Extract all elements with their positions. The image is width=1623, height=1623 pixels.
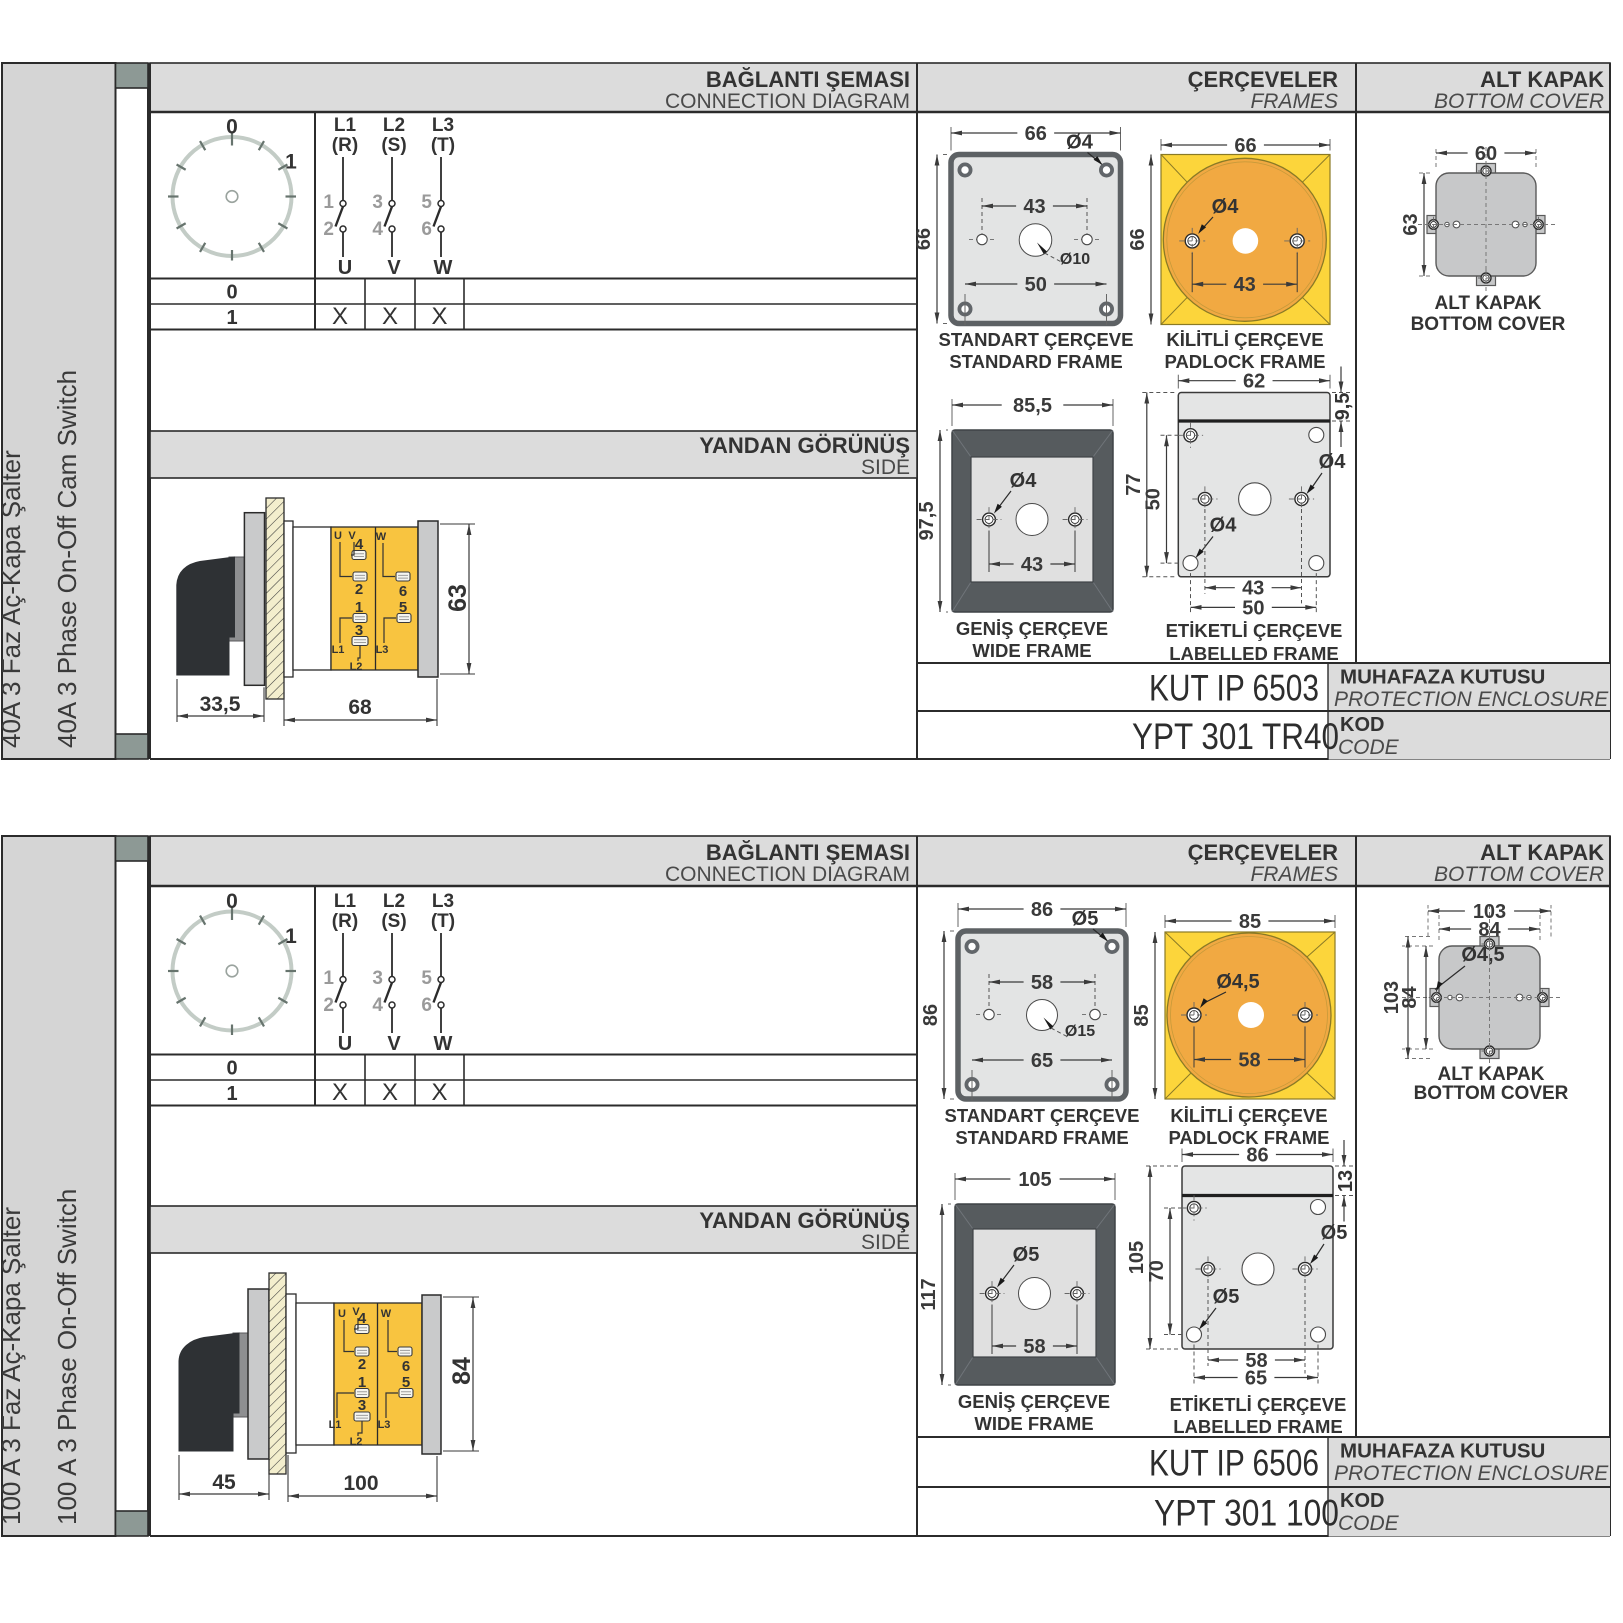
svg-text:Ø5: Ø5 [1013,1244,1040,1266]
svg-text:Ø5: Ø5 [1321,1222,1348,1244]
svg-text:84: 84 [448,1357,476,1385]
svg-text:5: 5 [402,1374,410,1391]
svg-text:4: 4 [355,536,364,553]
svg-text:33,5: 33,5 [200,693,241,716]
svg-text:WIDE FRAME: WIDE FRAME [972,640,1091,661]
svg-text:5: 5 [421,192,432,213]
svg-text:3: 3 [372,192,383,213]
svg-text:CONNECTION DIAGRAM: CONNECTION DIAGRAM [665,863,910,886]
svg-text:1: 1 [226,307,237,329]
svg-text:L2: L2 [383,891,405,912]
svg-text:LABELLED FRAME: LABELLED FRAME [1173,1416,1343,1437]
svg-text:66: 66 [913,228,935,250]
svg-text:5: 5 [399,599,407,616]
svg-text:(R): (R) [332,135,358,156]
svg-text:BOTTOM COVER: BOTTOM COVER [1411,314,1566,335]
svg-text:ALT KAPAK: ALT KAPAK [1435,293,1542,314]
svg-text:ETİKETLİ ÇERÇEVE: ETİKETLİ ÇERÇEVE [1170,1394,1347,1415]
svg-text:65: 65 [1245,1368,1267,1390]
svg-text:CODE: CODE [1338,1512,1400,1535]
svg-text:4: 4 [358,1310,367,1327]
svg-text:STANDARD FRAME: STANDARD FRAME [955,1127,1128,1148]
svg-text:Ø10: Ø10 [1060,251,1090,268]
svg-text:L1: L1 [334,891,357,912]
svg-text:63: 63 [1400,213,1422,235]
svg-text:X: X [382,303,398,330]
svg-text:6: 6 [402,1358,410,1375]
svg-text:L2: L2 [350,661,363,673]
svg-text:85,5: 85,5 [1013,395,1052,417]
svg-text:Ø15: Ø15 [1065,1023,1095,1040]
svg-text:1: 1 [226,1083,237,1105]
svg-text:1: 1 [358,1374,366,1391]
svg-text:FRAMES: FRAMES [1250,90,1338,113]
svg-text:1: 1 [323,192,334,213]
svg-text:W: W [381,1308,392,1320]
svg-text:0: 0 [226,890,238,913]
svg-text:STANDART ÇERÇEVE: STANDART ÇERÇEVE [939,329,1134,350]
svg-text:3: 3 [358,1397,366,1414]
svg-text:68: 68 [348,696,372,719]
svg-text:KOD: KOD [1340,1490,1384,1512]
svg-text:PROTECTION ENCLOSURE: PROTECTION ENCLOSURE [1334,688,1609,711]
svg-text:L1: L1 [334,115,357,136]
svg-text:W: W [434,257,453,279]
svg-text:CONNECTION DIAGRAM: CONNECTION DIAGRAM [665,90,910,113]
svg-text:6: 6 [421,995,432,1016]
svg-text:86: 86 [1031,899,1053,921]
svg-text:U: U [334,530,342,542]
svg-text:3: 3 [372,968,383,989]
svg-text:86: 86 [1246,1145,1268,1167]
svg-text:BOTTOM COVER: BOTTOM COVER [1434,90,1604,113]
svg-text:BOTTOM COVER: BOTTOM COVER [1414,1083,1569,1104]
svg-text:62: 62 [1243,371,1265,393]
svg-text:Ø4: Ø4 [1212,196,1240,218]
svg-text:63: 63 [444,584,472,612]
svg-text:0: 0 [226,116,238,139]
svg-text:(S): (S) [381,911,406,932]
svg-text:WIDE FRAME: WIDE FRAME [974,1413,1093,1434]
svg-text:(T): (T) [431,911,455,932]
svg-text:45: 45 [212,1471,236,1494]
svg-text:0: 0 [226,282,237,304]
svg-text:Ø4: Ø4 [1010,470,1038,492]
svg-text:L3: L3 [432,891,454,912]
svg-text:KİLİTLİ ÇERÇEVE: KİLİTLİ ÇERÇEVE [1166,329,1323,350]
svg-text:1: 1 [323,968,334,989]
svg-text:58: 58 [1023,1336,1045,1358]
svg-text:BOTTOM COVER: BOTTOM COVER [1434,863,1604,886]
svg-text:1: 1 [285,151,297,174]
svg-text:(S): (S) [381,135,406,156]
svg-text:0: 0 [226,1058,237,1080]
svg-text:2: 2 [355,581,363,598]
svg-text:L3: L3 [378,1419,391,1431]
svg-text:YPT 301 TR40: YPT 301 TR40 [1132,716,1339,757]
svg-text:(T): (T) [431,135,455,156]
svg-text:6: 6 [399,583,407,600]
svg-text:43: 43 [1021,554,1043,576]
svg-text:Ø4: Ø4 [1210,515,1238,537]
svg-text:ALT KAPAK: ALT KAPAK [1438,1064,1545,1085]
svg-text:85: 85 [1239,911,1261,933]
svg-text:58: 58 [1031,972,1053,994]
svg-text:YANDAN GÖRÜNÜŞ: YANDAN GÖRÜNÜŞ [699,1208,910,1233]
svg-text:CODE: CODE [1338,736,1400,759]
svg-text:100: 100 [343,1472,378,1495]
svg-text:4: 4 [372,995,383,1016]
svg-text:85: 85 [1131,1004,1153,1026]
svg-text:77: 77 [1123,474,1145,496]
svg-text:X: X [431,1079,447,1106]
svg-text:66: 66 [1127,228,1149,250]
svg-text:L2: L2 [350,1436,363,1448]
svg-text:43: 43 [1023,196,1045,218]
svg-text:MUHAFAZA KUTUSU: MUHAFAZA KUTUSU [1340,666,1545,689]
svg-text:SIDE: SIDE [861,1231,910,1254]
svg-text:L1: L1 [332,644,345,656]
svg-text:ÇERÇEVELER: ÇERÇEVELER [1188,67,1338,92]
svg-text:84: 84 [1399,986,1421,1009]
svg-text:W: W [434,1033,453,1055]
svg-text:X: X [431,303,447,330]
svg-text:FRAMES: FRAMES [1250,863,1338,886]
svg-text:X: X [382,1079,398,1106]
svg-text:GENİŞ ÇERÇEVE: GENİŞ ÇERÇEVE [956,618,1108,639]
svg-text:PADLOCK FRAME: PADLOCK FRAME [1164,351,1325,372]
svg-text:L3: L3 [432,115,454,136]
svg-text:3: 3 [355,622,363,639]
svg-text:KİLİTLİ ÇERÇEVE: KİLİTLİ ÇERÇEVE [1170,1105,1327,1126]
svg-text:50: 50 [1025,274,1047,296]
svg-text:L3: L3 [376,644,389,656]
svg-text:L1: L1 [329,1419,342,1431]
svg-text:ALT KAPAK: ALT KAPAK [1480,67,1604,92]
svg-text:SIDE: SIDE [861,456,910,479]
svg-text:U: U [338,1033,352,1055]
svg-text:Ø5: Ø5 [1213,1286,1240,1308]
svg-text:105: 105 [1126,1241,1148,1274]
svg-text:86: 86 [920,1004,942,1026]
svg-text:ETİKETLİ ÇERÇEVE: ETİKETLİ ÇERÇEVE [1166,620,1343,641]
svg-text:Ø5: Ø5 [1072,908,1099,930]
svg-text:PROTECTION ENCLOSURE: PROTECTION ENCLOSURE [1334,1462,1609,1485]
svg-text:1: 1 [285,925,297,948]
svg-text:KUT IP 6503: KUT IP 6503 [1149,668,1319,709]
svg-text:YPT 301 100: YPT 301 100 [1154,1492,1339,1533]
svg-text:65: 65 [1031,1050,1053,1072]
svg-text:105: 105 [1018,1169,1051,1191]
svg-text:43: 43 [1234,274,1256,296]
svg-text:9,5: 9,5 [1332,393,1354,421]
svg-text:117: 117 [918,1278,940,1310]
svg-text:GENİŞ ÇERÇEVE: GENİŞ ÇERÇEVE [958,1391,1110,1412]
svg-text:5: 5 [421,968,432,989]
svg-text:YANDAN GÖRÜNÜŞ: YANDAN GÖRÜNÜŞ [699,433,910,458]
svg-text:50: 50 [1143,488,1165,510]
svg-text:ÇERÇEVELER: ÇERÇEVELER [1188,840,1338,865]
svg-text:1: 1 [355,599,363,616]
svg-text:Ø4,5: Ø4,5 [1216,971,1259,993]
svg-text:100 A 3 Faz Aç-Kapa Şalter: 100 A 3 Faz Aç-Kapa Şalter [0,1207,26,1525]
svg-text:V: V [387,257,401,279]
svg-text:KUT IP 6506: KUT IP 6506 [1149,1443,1319,1484]
svg-text:70: 70 [1146,1260,1168,1282]
svg-text:97,5: 97,5 [916,502,938,541]
svg-text:V: V [387,1033,401,1055]
svg-text:50: 50 [1242,597,1264,619]
svg-text:Ø4: Ø4 [1066,132,1094,154]
svg-text:6: 6 [421,219,432,240]
svg-text:STANDART ÇERÇEVE: STANDART ÇERÇEVE [945,1105,1140,1126]
svg-text:X: X [332,1079,348,1106]
svg-text:2: 2 [323,995,334,1016]
svg-text:66: 66 [1025,123,1047,145]
svg-text:Ø4,5: Ø4,5 [1461,944,1504,966]
svg-text:Ø4: Ø4 [1319,451,1347,473]
svg-text:58: 58 [1238,1050,1260,1072]
svg-text:MUHAFAZA KUTUSU: MUHAFAZA KUTUSU [1340,1440,1545,1463]
svg-text:4: 4 [372,219,383,240]
svg-text:40A 3 Faz Aç-Kapa Şalter: 40A 3 Faz Aç-Kapa Şalter [0,450,26,748]
svg-text:W: W [376,531,387,543]
svg-text:84: 84 [1478,919,1501,941]
svg-text:100 A 3 Phase On-Off Switch: 100 A 3 Phase On-Off Switch [52,1189,82,1525]
svg-text:U: U [338,257,352,279]
svg-text:ALT KAPAK: ALT KAPAK [1480,840,1604,865]
svg-text:X: X [332,303,348,330]
svg-text:LABELLED FRAME: LABELLED FRAME [1169,643,1339,664]
svg-text:2: 2 [323,219,334,240]
svg-text:BAĞLANTI ŞEMASI: BAĞLANTI ŞEMASI [706,840,910,865]
svg-text:66: 66 [1234,135,1256,157]
svg-text:BAĞLANTI ŞEMASI: BAĞLANTI ŞEMASI [706,67,910,92]
svg-text:43: 43 [1242,578,1264,600]
svg-text:40A 3 Phase On-Off Cam Switch: 40A 3 Phase On-Off Cam Switch [52,370,82,748]
svg-text:60: 60 [1475,143,1497,165]
svg-text:STANDARD FRAME: STANDARD FRAME [949,351,1122,372]
svg-text:U: U [338,1308,346,1320]
svg-text:2: 2 [358,1356,366,1373]
svg-text:13: 13 [1335,1170,1357,1192]
svg-text:KOD: KOD [1340,714,1384,736]
svg-text:(R): (R) [332,911,358,932]
svg-text:L2: L2 [383,115,405,136]
